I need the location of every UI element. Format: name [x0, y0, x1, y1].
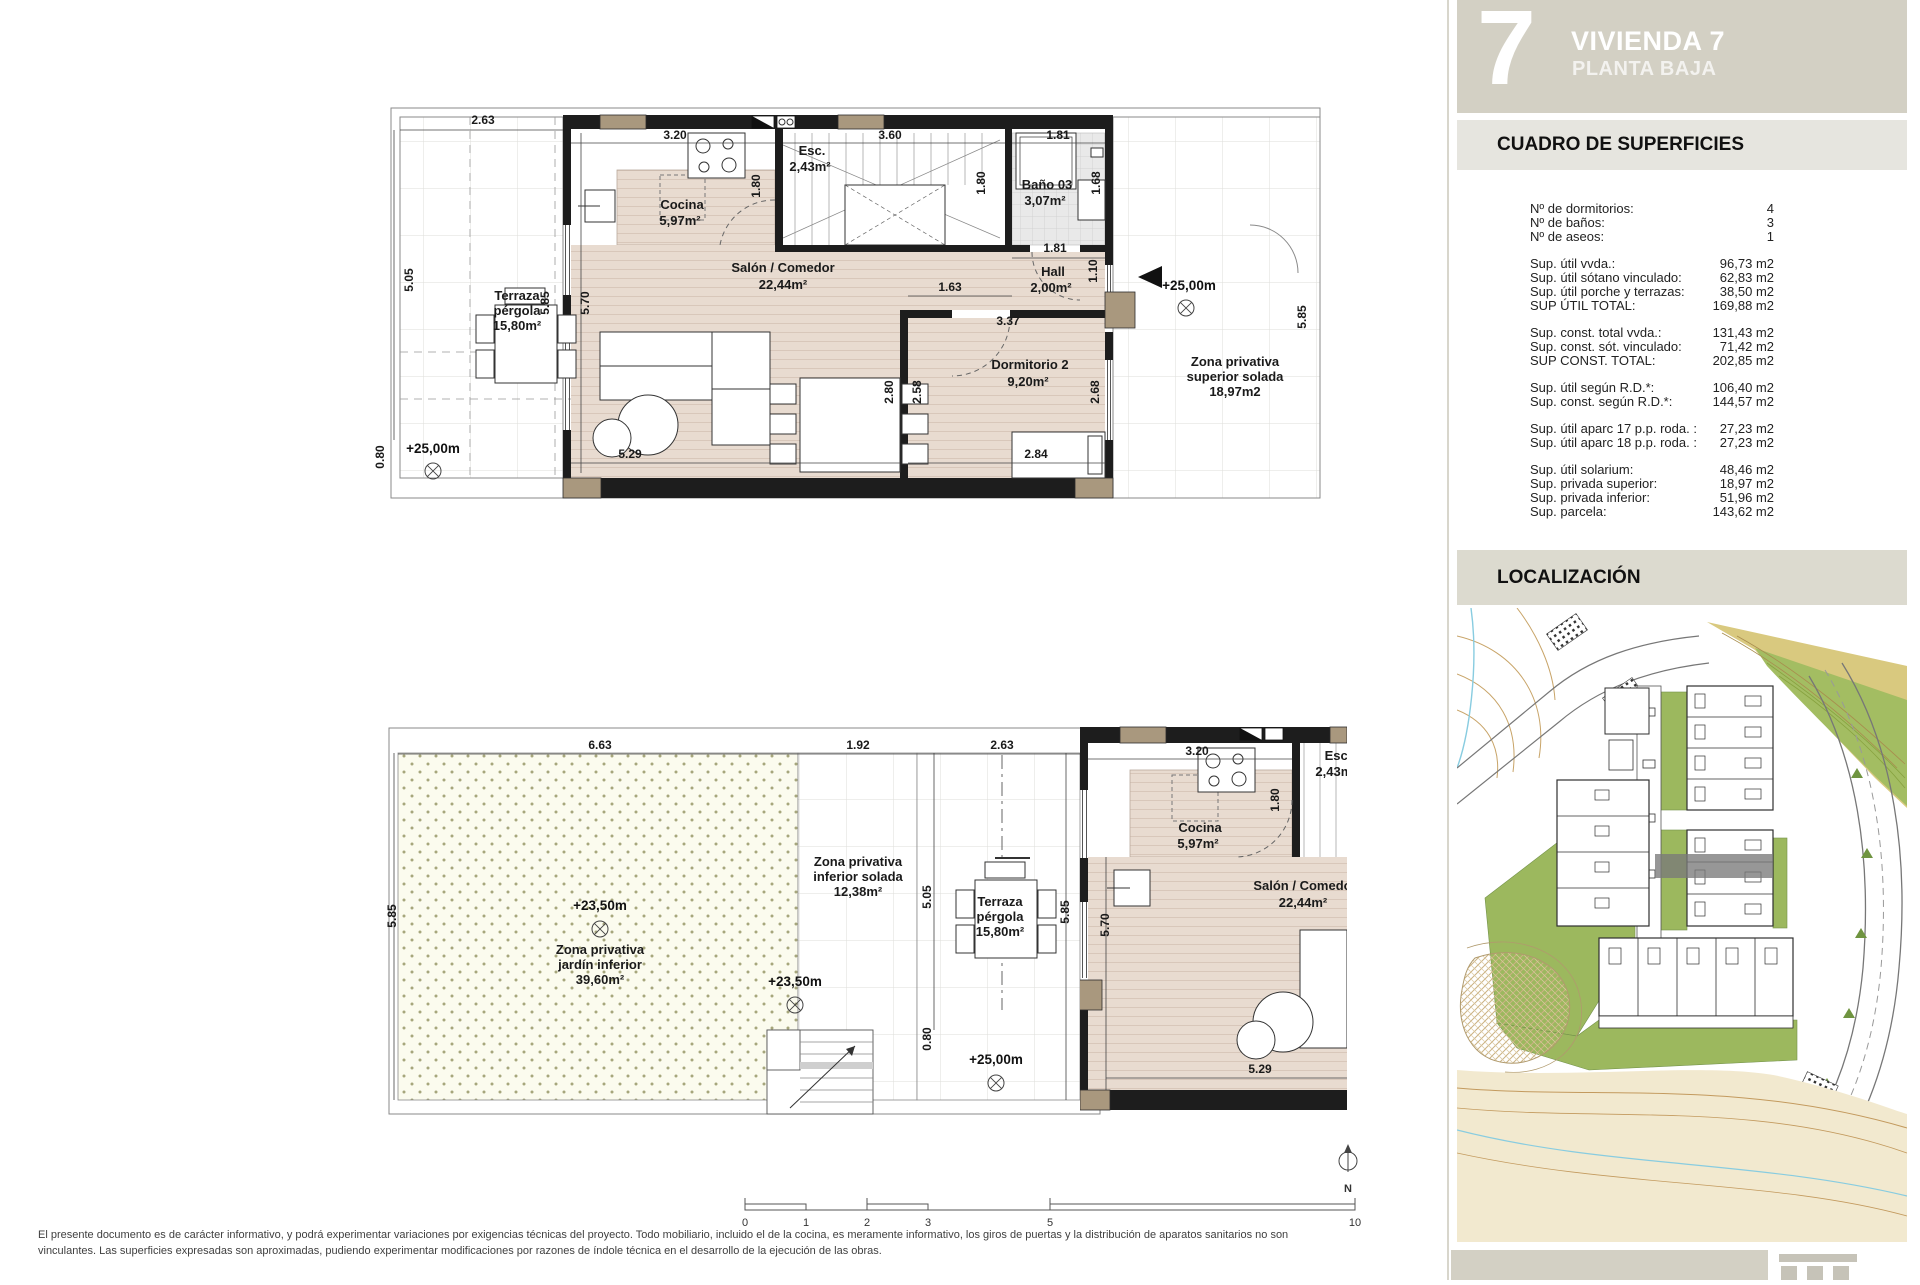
row-label: Sup. útil porche y terrazas:	[1530, 285, 1720, 299]
table-row: Nº de aseos:1	[1530, 230, 1774, 244]
localization-section-title: LOCALIZACIÓN	[1457, 550, 1907, 605]
row-value: 38,50 m2	[1720, 285, 1774, 299]
room-label-salon-lower: Salón / Comedor	[1253, 878, 1356, 893]
disclaimer-line2: vinculantes. Las superficies expresadas …	[38, 1244, 1438, 1260]
room-label-esc-lower: Esc.	[1325, 748, 1352, 763]
table-row: Sup. privada superior:18,97 m2	[1530, 477, 1774, 491]
row-value: 169,88 m2	[1713, 299, 1774, 313]
row-label: Sup. const. sót. vinculado:	[1530, 340, 1720, 354]
sheet-title: VIVIENDA 7	[1571, 26, 1725, 57]
dim-label: 5.85	[1295, 305, 1309, 329]
dim-label: 5.05	[920, 885, 934, 909]
row-label: Sup. privada inferior:	[1530, 491, 1720, 505]
adjacent-unit: 3.20 1.80 5.70 5.29 Cocina 5,97m² Salón …	[1076, 727, 1357, 1110]
sheet-subtitle: PLANTA BAJA	[1572, 58, 1716, 81]
zone-label-superior: superior solada	[1187, 369, 1285, 384]
table-row: Nº de dormitorios:4	[1530, 202, 1774, 216]
table-row: Sup. const. según R.D.*:144,57 m2	[1530, 395, 1774, 409]
dim-label: 5.29	[1248, 1062, 1272, 1076]
surfaces-section-title: CUADRO DE SUPERFICIES	[1457, 120, 1907, 170]
dim-label: 1.92	[846, 738, 870, 752]
row-value: 27,23 m2	[1720, 422, 1774, 436]
svg-text:+23,50m: +23,50m	[768, 974, 822, 989]
room-label-terraza-lower: 15,80m²	[976, 924, 1025, 939]
table-row: SUP CONST. TOTAL:202,85 m2	[1530, 354, 1774, 368]
room-label-salon: 22,44m²	[759, 277, 808, 292]
table-row: Sup. útil solarium:48,46 m2	[1530, 463, 1774, 477]
table-row: Sup. útil sótano vinculado:62,83 m2	[1530, 271, 1774, 285]
dim-label: 0.80	[920, 1027, 934, 1051]
surface-group: Sup. útil vvda.:96,73 m2 Sup. útil sótan…	[1530, 257, 1774, 313]
row-value: 18,97 m2	[1720, 477, 1774, 491]
building-upper-right	[1687, 686, 1773, 810]
row-label: Sup. útil aparc 17 p.p. roda. :	[1530, 422, 1720, 436]
dim-label: 1.10	[1086, 259, 1100, 283]
room-label-terraza: Terraza	[494, 288, 540, 303]
svg-text:+25,00m: +25,00m	[969, 1052, 1023, 1067]
zone-label-jardin: jardín inferior	[557, 957, 642, 972]
floorplan-svg: 2.63 3.20 3.60 1.81 1.81 1.63 5.29 2.84 …	[0, 0, 1447, 1280]
surfaces-table: Nº de dormitorios:4 Nº de baños:3 Nº de …	[1530, 202, 1774, 532]
table-row: Sup. const. total vvda.:131,43 m2	[1530, 326, 1774, 340]
lower-floor-plan: 6.63 1.92 2.63 5.85 5.05 5.85 0.80 +23,5…	[385, 727, 1357, 1114]
room-label-terraza-lower: pérgola	[977, 909, 1025, 924]
dim-label: 2.63	[471, 113, 495, 127]
legal-disclaimer: El presente documento es de carácter inf…	[38, 1228, 1438, 1259]
dim-label: 1.63	[938, 280, 962, 294]
row-value: 96,73 m2	[1720, 257, 1774, 271]
table-row: Sup. parcela:143,62 m2	[1530, 505, 1774, 519]
dim-label: 2.68	[1088, 380, 1102, 404]
row-value: 4	[1767, 202, 1774, 216]
room-label-hall: 2,00m²	[1030, 280, 1072, 295]
surface-group: Nº de dormitorios:4 Nº de baños:3 Nº de …	[1530, 202, 1774, 244]
dim-label: 5.70	[578, 291, 592, 315]
room-label-esc-lower: 2,43m²	[1315, 764, 1357, 779]
row-value: 1	[1767, 230, 1774, 244]
row-value: 202,85 m2	[1713, 354, 1774, 368]
room-label-dormitorio: 9,20m²	[1007, 374, 1049, 389]
row-value: 48,46 m2	[1720, 463, 1774, 477]
room-label-bano: Baño 03	[1022, 177, 1073, 192]
dim-label: 1.80	[1268, 788, 1282, 812]
table-row: Sup. útil aparc 18 p.p. roda. :27,23 m2	[1530, 436, 1774, 450]
svg-text:+25,00m: +25,00m	[406, 441, 460, 456]
surface-group: Sup. const. total vvda.:131,43 m2 Sup. c…	[1530, 326, 1774, 368]
table-row: Nº de baños:3	[1530, 216, 1774, 230]
dim-label: 2.58	[910, 380, 924, 404]
surface-group: Sup. útil aparc 17 p.p. roda. :27,23 m2 …	[1530, 422, 1774, 450]
room-label-cocina-lower: 5,97m²	[1177, 836, 1219, 851]
room-label-esc: Esc.	[799, 143, 826, 158]
row-value: 144,57 m2	[1713, 395, 1774, 409]
row-label: Sup. útil vvda.:	[1530, 257, 1720, 271]
plan-sheet: 2.63 3.20 3.60 1.81 1.81 1.63 5.29 2.84 …	[0, 0, 1920, 1280]
room-label-bano: 3,07m²	[1024, 193, 1066, 208]
surface-group: Sup. útil solarium:48,46 m2 Sup. privada…	[1530, 463, 1774, 519]
table-row: Sup. útil aparc 17 p.p. roda. :27,23 m2	[1530, 422, 1774, 436]
row-label: Sup. útil solarium:	[1530, 463, 1720, 477]
building-substation	[1609, 740, 1633, 770]
room-label-hall: Hall	[1041, 264, 1065, 279]
room-label-terraza: 15,80m²	[493, 318, 542, 333]
info-sidebar: 7 VIVIENDA 7 PLANTA BAJA CUADRO DE SUPER…	[1447, 0, 1920, 1280]
table-row: Sup. const. sót. vinculado:71,42 m2	[1530, 340, 1774, 354]
row-label: Sup. const. según R.D.*:	[1530, 395, 1713, 409]
company-logo-icon	[1779, 1254, 1865, 1280]
zone-label-jardin: 39,60m²	[576, 972, 625, 987]
row-value: 131,43 m2	[1713, 326, 1774, 340]
svg-text:+25,00m: +25,00m	[1162, 278, 1216, 293]
building-bottom-row	[1599, 938, 1793, 1028]
row-value: 143,62 m2	[1713, 505, 1774, 519]
north-arrow-icon: N	[1339, 1144, 1357, 1195]
dim-label: 1.81	[1043, 241, 1067, 255]
row-label: SUP ÚTIL TOTAL:	[1530, 299, 1713, 313]
location-map	[1457, 608, 1907, 1242]
dim-label: 2.63	[990, 738, 1014, 752]
sheet-header: 7 VIVIENDA 7 PLANTA BAJA	[1457, 0, 1907, 113]
row-label: Sup. útil aparc 18 p.p. roda. :	[1530, 436, 1720, 450]
room-label-cocina-lower: Cocina	[1178, 820, 1222, 835]
dim-label: 2.80	[882, 380, 896, 404]
row-label: Sup. parcela:	[1530, 505, 1713, 519]
dim-label: 3.20	[663, 128, 687, 142]
dim-label: 5.29	[618, 447, 642, 461]
drawing-area: 2.63 3.20 3.60 1.81 1.81 1.63 5.29 2.84 …	[0, 0, 1447, 1280]
shore-band	[1457, 1070, 1907, 1242]
building-small	[1605, 688, 1649, 734]
surface-group: Sup. útil según R.D.*:106,40 m2 Sup. con…	[1530, 381, 1774, 409]
dim-label: 1.80	[974, 171, 988, 195]
room-label-terraza-lower: Terraza	[977, 894, 1023, 909]
building-left	[1557, 780, 1649, 926]
row-label: SUP CONST. TOTAL:	[1530, 354, 1713, 368]
row-value: 27,23 m2	[1720, 436, 1774, 450]
dim-label: 6.63	[588, 738, 612, 752]
table-row: Sup. útil vvda.:96,73 m2	[1530, 257, 1774, 271]
highlighted-unit-7	[1655, 854, 1773, 878]
row-value: 3	[1767, 216, 1774, 230]
room-label-cocina: Cocina	[660, 197, 704, 212]
dim-label: 2.84	[1024, 447, 1048, 461]
dim-label: 5.05	[402, 268, 416, 292]
table-row: Sup. útil porche y terrazas:38,50 m2	[1530, 285, 1774, 299]
row-value: 51,96 m2	[1720, 491, 1774, 505]
row-label: Sup. útil según R.D.*:	[1530, 381, 1713, 395]
zone-label-superior: Zona privativa	[1191, 354, 1280, 369]
zone-label-inferior: Zona privativa	[814, 854, 903, 869]
dim-label: 5.85	[1058, 900, 1072, 924]
row-label: Nº de baños:	[1530, 216, 1767, 230]
dim-label: 1.68	[1089, 171, 1103, 195]
room-label-salon: Salón / Comedor	[731, 260, 834, 275]
row-value: 106,40 m2	[1713, 381, 1774, 395]
room-label-cocina: 5,97m²	[659, 213, 701, 228]
zone-label-inferior: 12,38m²	[834, 884, 883, 899]
room-label-terraza: pérgola	[494, 303, 542, 318]
door-glyphs-upper	[752, 116, 795, 128]
zone-label-superior: 18,97m2	[1209, 384, 1260, 399]
disclaimer-line1: El presente documento es de carácter inf…	[38, 1228, 1438, 1244]
row-value: 71,42 m2	[1720, 340, 1774, 354]
dim-label: 1.81	[1046, 128, 1070, 142]
table-row: SUP ÚTIL TOTAL:169,88 m2	[1530, 299, 1774, 313]
table-row: Sup. útil según R.D.*:106,40 m2	[1530, 381, 1774, 395]
row-label: Nº de dormitorios:	[1530, 202, 1767, 216]
dim-label: 3.60	[878, 128, 902, 142]
room-label-salon-lower: 22,44m²	[1279, 895, 1328, 910]
dim-label: 1.80	[749, 174, 763, 198]
dim-label: 3.20	[1185, 744, 1209, 758]
table-row: Sup. privada inferior:51,96 m2	[1530, 491, 1774, 505]
exterior-stairs	[767, 1030, 873, 1114]
row-label: Sup. const. total vvda.:	[1530, 326, 1713, 340]
dim-label: 5.70	[1098, 913, 1112, 937]
unit-number: 7	[1477, 0, 1536, 108]
dim-label: 5.85	[385, 904, 399, 928]
room-label-esc: 2,43m²	[789, 159, 831, 174]
row-label: Sup. privada superior:	[1530, 477, 1720, 491]
scale-bar: 0 1 2 3 5 10	[742, 1198, 1361, 1229]
upper-floor-plan: 2.63 3.20 3.60 1.81 1.81 1.63 5.29 2.84 …	[373, 108, 1320, 498]
dim-label: 0.80	[373, 445, 387, 469]
svg-text:+23,50m: +23,50m	[573, 898, 627, 913]
zone-label-inferior: inferior solada	[813, 869, 903, 884]
row-value: 62,83 m2	[1720, 271, 1774, 285]
room-label-dormitorio: Dormitorio 2	[991, 357, 1068, 372]
row-label: Nº de aseos:	[1530, 230, 1767, 244]
dim-label: 3.37	[996, 314, 1020, 328]
zone-label-jardin: Zona privativa	[556, 942, 645, 957]
row-label: Sup. útil sótano vinculado:	[1530, 271, 1720, 285]
north-label: N	[1344, 1183, 1352, 1195]
footer-band	[1451, 1250, 1768, 1280]
